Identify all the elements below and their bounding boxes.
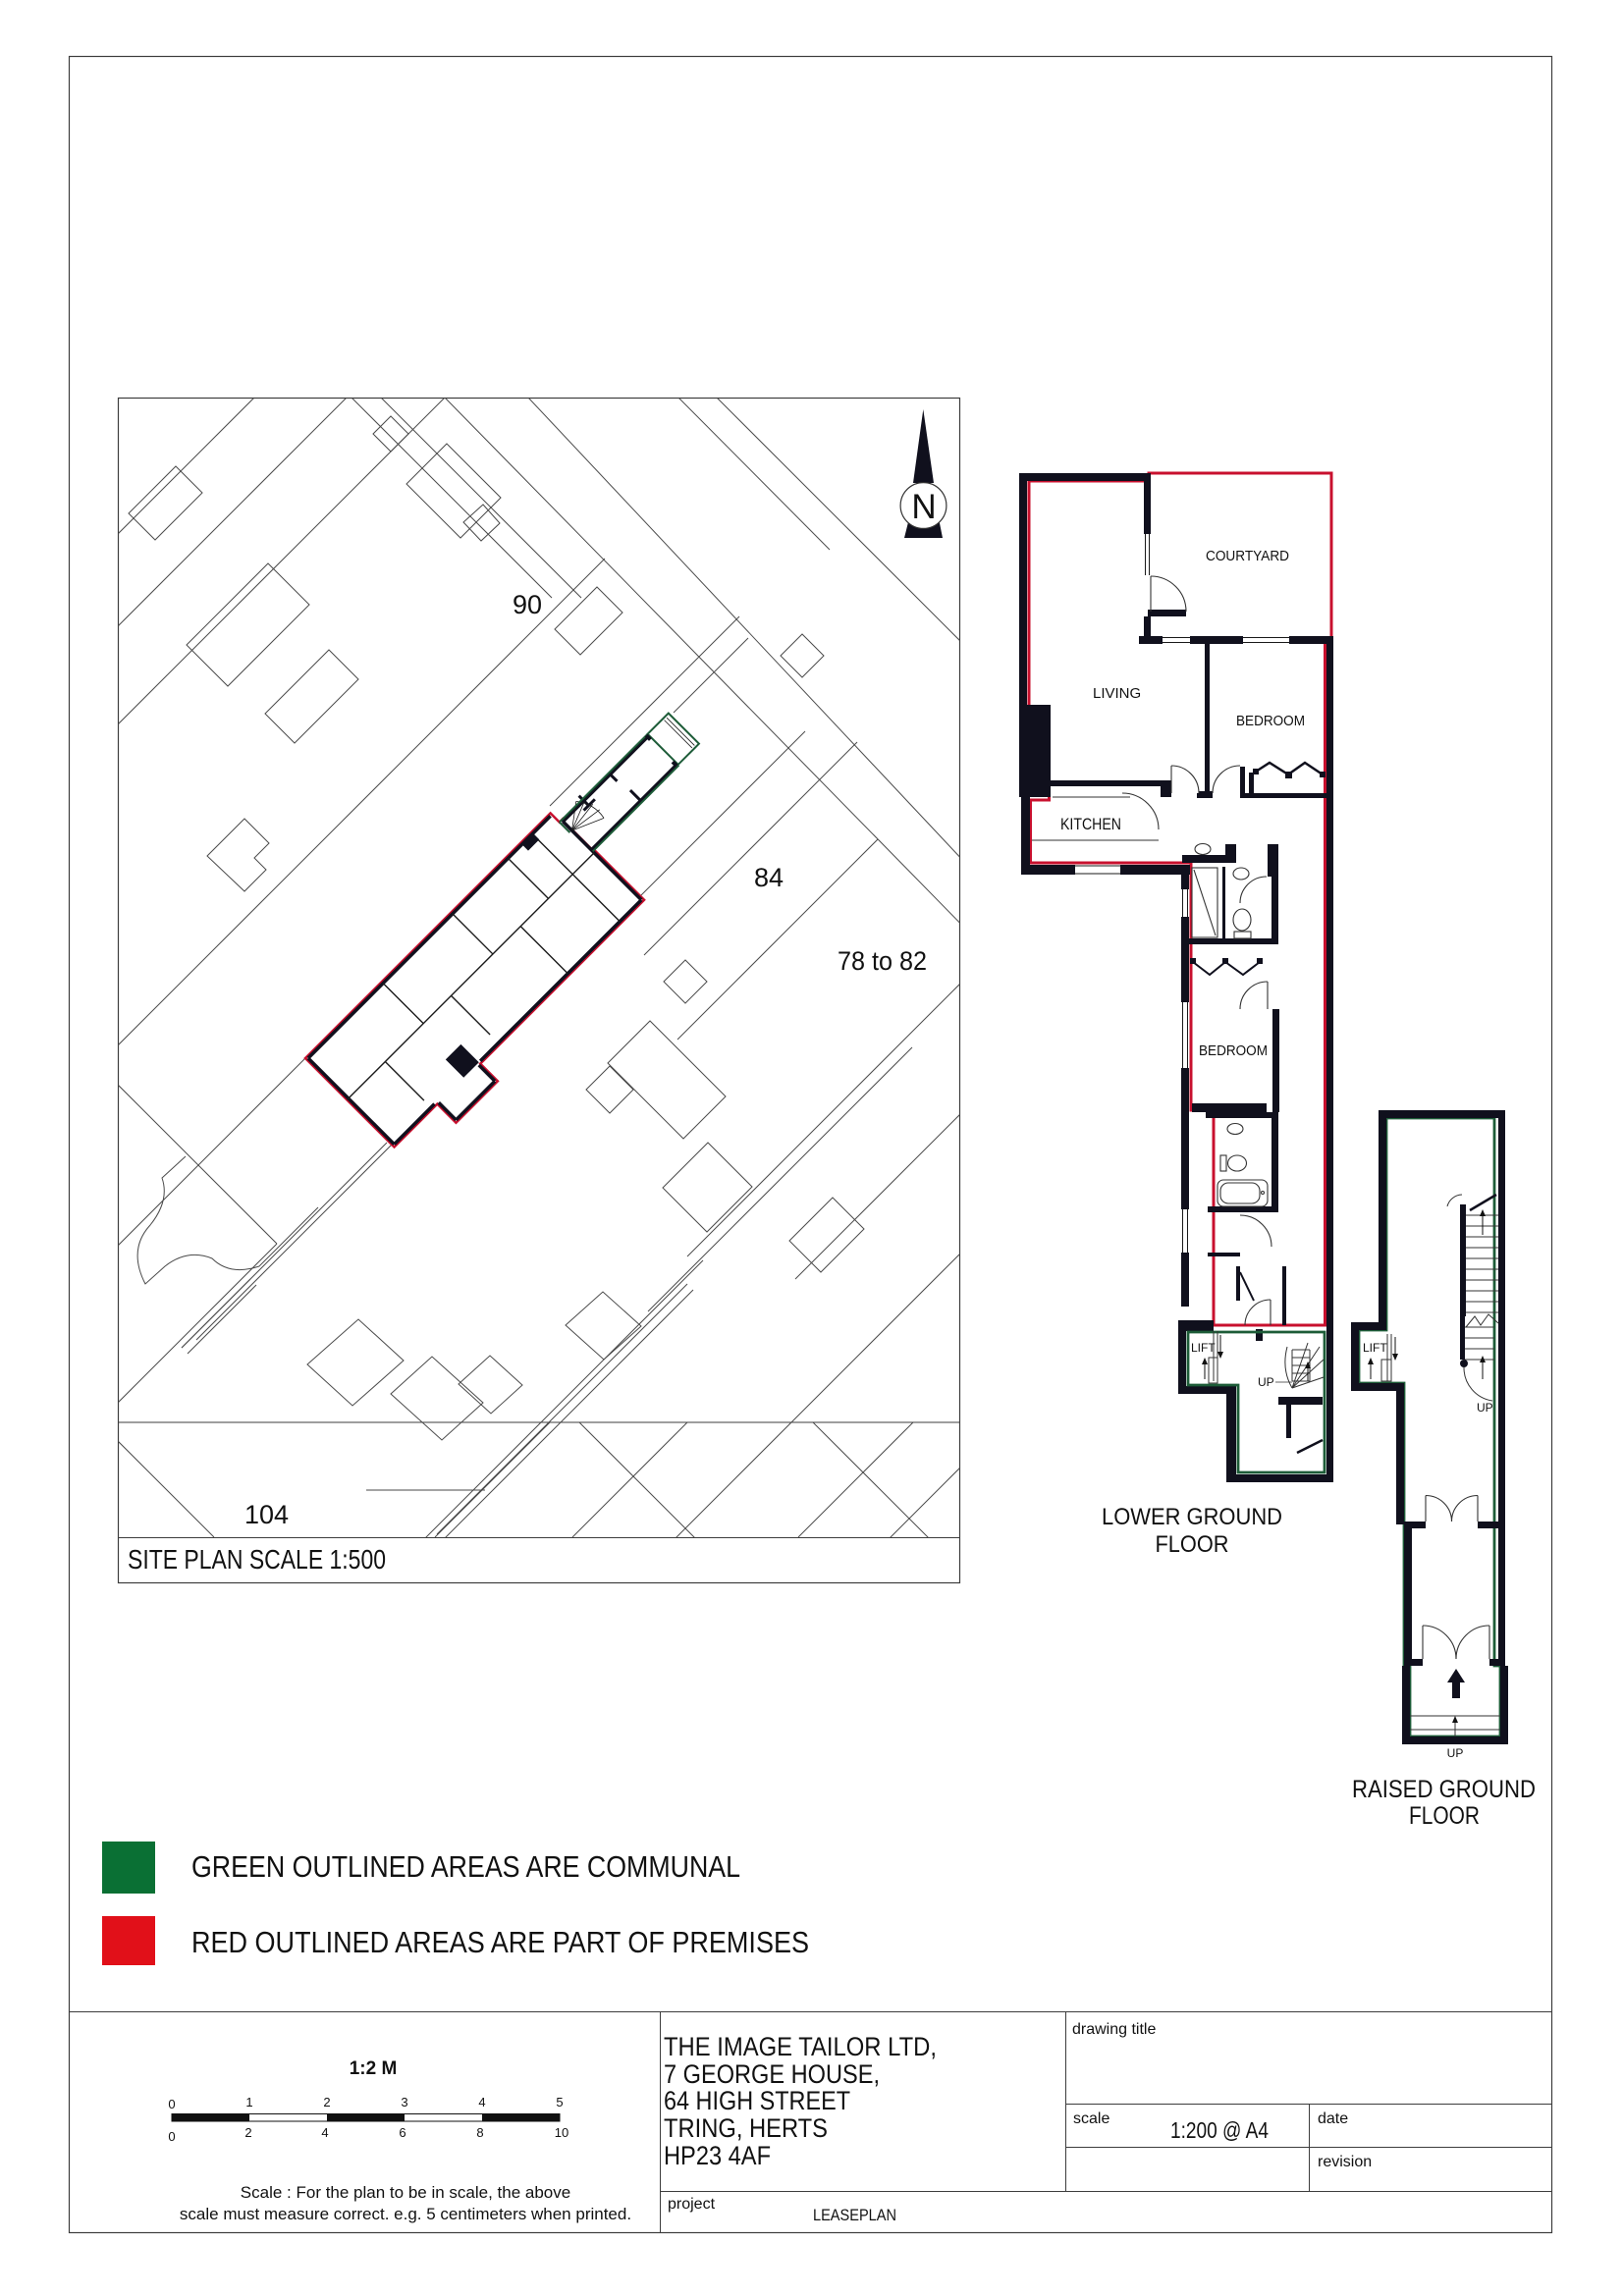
- svg-text:GREEN OUTLINED AREAS ARE COMMU: GREEN OUTLINED AREAS ARE COMMUNAL: [191, 1849, 740, 1884]
- svg-text:2: 2: [323, 2095, 330, 2109]
- svg-text:drawing title: drawing title: [1072, 2021, 1156, 2038]
- svg-text:LIFT: LIFT: [1363, 1341, 1387, 1355]
- svg-text:UP: UP: [1447, 1746, 1464, 1760]
- svg-text:84: 84: [754, 863, 784, 892]
- svg-text:KITCHEN: KITCHEN: [1060, 815, 1121, 833]
- svg-text:scale must measure correct. e.: scale must measure correct. e.g. 5 centi…: [180, 2205, 631, 2223]
- svg-text:date: date: [1318, 2110, 1348, 2127]
- svg-text:Scale : For the plan to be in: Scale : For the plan to be in scale, the…: [241, 2183, 570, 2202]
- svg-text:LIVING: LIVING: [1093, 685, 1141, 702]
- svg-text:6: 6: [399, 2125, 406, 2140]
- svg-text:scale: scale: [1073, 2110, 1109, 2127]
- svg-text:2: 2: [244, 2125, 251, 2140]
- svg-text:4: 4: [321, 2125, 328, 2140]
- svg-text:SITE PLAN SCALE 1:500: SITE PLAN SCALE 1:500: [128, 1544, 386, 1575]
- svg-text:LEASEPLAN: LEASEPLAN: [813, 2206, 896, 2224]
- svg-text:1:2 M: 1:2 M: [350, 2058, 398, 2079]
- svg-text:BEDROOM: BEDROOM: [1199, 1042, 1268, 1059]
- svg-text:COURTYARD: COURTYARD: [1206, 548, 1289, 564]
- svg-text:UP: UP: [1477, 1401, 1493, 1415]
- svg-text:UP: UP: [1258, 1375, 1274, 1389]
- svg-text:revision: revision: [1318, 2154, 1372, 2170]
- svg-text:1:200 @ A4: 1:200 @ A4: [1170, 2117, 1269, 2143]
- svg-text:1: 1: [245, 2095, 252, 2109]
- svg-text:64 HIGH STREET: 64 HIGH STREET: [664, 2086, 850, 2115]
- svg-text:8: 8: [476, 2125, 483, 2140]
- svg-text:FLOOR: FLOOR: [1156, 1531, 1229, 1558]
- svg-text:3: 3: [401, 2095, 407, 2109]
- svg-text:0: 0: [168, 2129, 175, 2144]
- svg-text:104: 104: [244, 1500, 289, 1529]
- svg-text:project: project: [668, 2196, 716, 2213]
- svg-text:RAISED GROUND: RAISED GROUND: [1352, 1776, 1536, 1803]
- svg-text:BEDROOM: BEDROOM: [1236, 713, 1305, 729]
- svg-text:90: 90: [513, 590, 542, 619]
- svg-text:TRING, HERTS: TRING, HERTS: [664, 2113, 828, 2143]
- svg-text:10: 10: [555, 2125, 568, 2140]
- svg-text:0: 0: [168, 2097, 175, 2111]
- svg-text:5: 5: [556, 2095, 563, 2109]
- svg-text:FLOOR: FLOOR: [1409, 1802, 1480, 1830]
- svg-text:4: 4: [478, 2095, 485, 2109]
- svg-text:HP23 4AF: HP23 4AF: [664, 2141, 771, 2170]
- svg-text:7 GEORGE HOUSE,: 7 GEORGE HOUSE,: [664, 2059, 880, 2089]
- svg-text:78 to 82: 78 to 82: [838, 946, 927, 976]
- svg-text:THE IMAGE TAILOR LTD,: THE IMAGE TAILOR LTD,: [664, 2032, 937, 2061]
- svg-text:LIFT: LIFT: [1191, 1341, 1216, 1355]
- svg-text:N: N: [911, 488, 936, 526]
- svg-text:LOWER GROUND: LOWER GROUND: [1102, 1504, 1282, 1530]
- svg-text:RED OUTLINED AREAS ARE PART OF: RED OUTLINED AREAS ARE PART OF PREMISES: [191, 1925, 809, 1959]
